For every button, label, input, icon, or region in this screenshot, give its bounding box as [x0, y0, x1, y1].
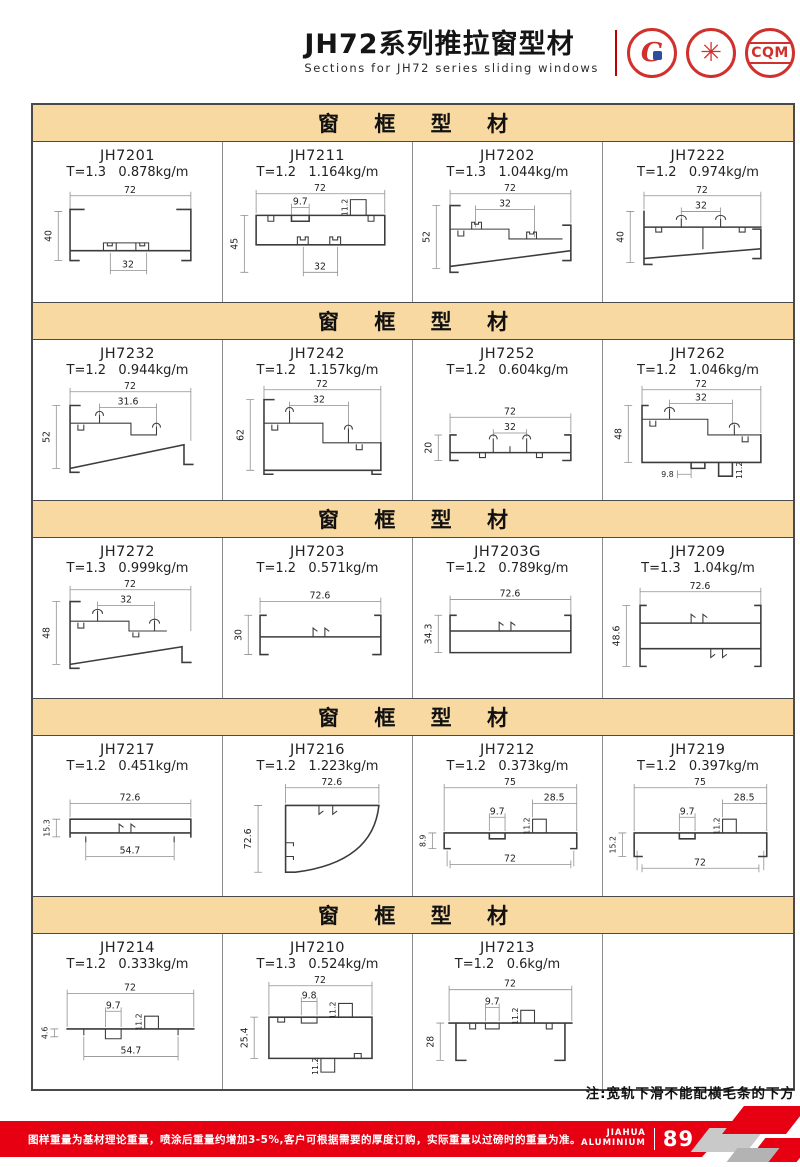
profile-model: JH7211	[223, 148, 412, 164]
profile-spec: T=1.2 0.571kg/m	[223, 561, 412, 576]
profile-drawing: 72 9.7 11.2 32 45	[224, 180, 412, 290]
profile-spec: T=1.2 1.157kg/m	[223, 363, 412, 378]
profile-cell-jh7272: JH7272 T=1.3 0.999kg/m 72 32 48	[33, 538, 223, 698]
dim-label: 54.7	[120, 1045, 141, 1056]
dim-label: 32	[314, 261, 326, 272]
profile-spec: T=1.2 0.373kg/m	[413, 759, 602, 774]
dim-label: 72	[504, 406, 516, 417]
footer-disclaimer: 图样重量为基材理论重量，喷涂后重量约增加3-5%,客户可根据需要的厚度订购，实际…	[28, 1132, 581, 1147]
profile-drawing: 72 32 52	[414, 180, 602, 290]
profile-model: JH7242	[223, 346, 412, 362]
profile-model: JH7213	[413, 940, 602, 956]
dim-label: 72.6	[499, 589, 520, 600]
dim-label: 25.4	[239, 1027, 250, 1048]
profile-cell-jh7201: JH7201 T=1.3 0.878kg/m 72 32 40	[33, 142, 223, 302]
dim-label: 72	[124, 185, 136, 196]
dim-label: 30	[233, 629, 244, 641]
profile-outline	[450, 615, 571, 652]
profile-outline	[268, 1017, 371, 1058]
cqm-certification-seal-icon: CQM	[745, 28, 795, 78]
profile-model: JH7214	[33, 940, 222, 956]
profile-cell-jh7262: JH7262 T=1.2 1.046kg/m 72 32 48 9.8 11.2	[603, 340, 793, 500]
profile-cell-jh7203g: JH7203G T=1.2 0.789kg/m 72.6 34.3	[413, 538, 603, 698]
profile-model: JH7203	[223, 544, 412, 560]
profile-cell-jh7202: JH7202 T=1.3 1.044kg/m 72 32 52	[413, 142, 603, 302]
profile-cell-jh7214: JH7214 T=1.2 0.333kg/m 72 9.7 11.2 54.7 …	[33, 934, 223, 1089]
gtb-certification-seal-icon: G	[627, 28, 677, 78]
profile-outline	[285, 805, 378, 872]
profile-model: JH7210	[223, 940, 412, 956]
dim-label: 72	[124, 983, 136, 994]
dim-label: 9.7	[105, 1000, 120, 1011]
profile-catalog: 窗 框 型 材 JH7201 T=1.3 0.878kg/m 72 32 40 …	[31, 103, 795, 1091]
dim-label: 72	[314, 183, 326, 194]
footnote: 注:宽轨下滑不能配横毛条的下方	[586, 1082, 795, 1102]
profile-spec: T=1.3 1.04kg/m	[603, 561, 793, 576]
dim-label: 32	[504, 422, 516, 433]
profile-detail	[313, 628, 329, 637]
profile-drawing: 75 28.5 9.7 11.2 72 8.9	[414, 774, 602, 884]
blue-mark	[653, 51, 662, 60]
profile-detail	[499, 622, 515, 631]
dim-label: 62	[235, 429, 246, 441]
cqm-label: CQM	[749, 42, 791, 64]
dim-label: 45	[229, 238, 240, 250]
profile-detail	[267, 200, 373, 245]
profile-drawing: 72.6 15.3 54.7	[34, 774, 222, 884]
profile-drawing: 72 32 40	[604, 180, 792, 290]
profile-detail	[450, 222, 562, 239]
profile-cell-jh7217: JH7217 T=1.2 0.451kg/m 72.6 15.3 54.7	[33, 736, 223, 896]
profile-detail	[103, 243, 148, 251]
profile-drawing: 72 32 40	[34, 180, 222, 290]
profile-cell-jh7212: JH7212 T=1.2 0.373kg/m 75 28.5 9.7 11.2 …	[413, 736, 603, 896]
certification-seals: G ✳ CQM	[627, 28, 795, 78]
dim-label: 28.5	[543, 793, 564, 804]
profile-drawing: 72 9.7 11.2 28	[414, 972, 602, 1080]
page-subtitle: Sections for JH72 series sliding windows	[304, 61, 599, 75]
dimension-lines	[240, 190, 384, 276]
dim-label: 20	[423, 442, 434, 454]
profile-spec: T=1.3 0.999kg/m	[33, 561, 222, 576]
profile-model: JH7201	[33, 148, 222, 164]
footer-decor-parallelogram-icon	[722, 1106, 800, 1134]
dim-label: 15.2	[609, 836, 618, 853]
profile-spec: T=1.2 0.974kg/m	[603, 165, 793, 180]
profile-model: JH7202	[413, 148, 602, 164]
profile-detail	[70, 411, 160, 435]
dim-label: 32	[695, 200, 707, 211]
star-certification-seal-icon: ✳	[686, 28, 736, 78]
star-glyph: ✳	[700, 40, 722, 66]
profile-spec: T=1.3 1.044kg/m	[413, 165, 602, 180]
brand-bottom: ALUMINIUM	[581, 1139, 646, 1149]
brand-name: JIAHUA ALUMINIUM	[581, 1129, 646, 1149]
footer-bar: 图样重量为基材理论重量，喷涂后重量约增加3-5%,客户可根据需要的厚度订购，实际…	[0, 1121, 735, 1157]
profile-model: JH7209	[603, 544, 793, 560]
dim-label: 52	[421, 231, 432, 243]
profile-drawing: 72 32 48 9.8 11.2	[604, 378, 792, 488]
dim-label: 72.6	[243, 828, 254, 849]
dim-label: 28.5	[734, 793, 755, 804]
profile-model: JH7252	[413, 346, 602, 362]
title-block: JH72系列推拉窗型材 Sections for JH72 series sli…	[304, 31, 599, 75]
section-row-5: JH7214 T=1.2 0.333kg/m 72 9.7 11.2 54.7 …	[33, 934, 793, 1089]
profile-drawing: 72.6 48.6	[604, 576, 792, 686]
profile-drawing: 72 9.7 11.2 54.7 4.6	[34, 972, 222, 1080]
section-header-3: 窗 框 型 材	[33, 500, 793, 538]
dim-label: 40	[615, 231, 626, 243]
profile-drawing: 72.6 34.3	[414, 576, 602, 686]
section-row-3: JH7272 T=1.3 0.999kg/m 72 32 48 JH7203 T…	[33, 538, 793, 698]
dim-label: 72	[695, 379, 707, 390]
dimension-lines	[622, 588, 760, 667]
section-row-1: JH7201 T=1.3 0.878kg/m 72 32 40 JH7211 T…	[33, 142, 793, 302]
profile-detail	[83, 1016, 177, 1039]
profile-spec: T=1.3 0.524kg/m	[223, 957, 412, 972]
section-header-5: 窗 框 型 材	[33, 896, 793, 934]
profile-cell-empty	[603, 934, 793, 1089]
profile-outline	[70, 209, 191, 260]
section-row-2: JH7232 T=1.2 0.944kg/m 72 31.6 52 JH7242…	[33, 340, 793, 500]
profile-detail	[263, 407, 380, 449]
profile-spec: T=1.2 0.944kg/m	[33, 363, 222, 378]
dim-label: 11.2	[311, 1058, 320, 1075]
profile-drawing: 72 9.8 11.2 11.2 25.4	[224, 972, 412, 1080]
profile-outline	[256, 215, 385, 244]
profile-spec: T=1.2 0.333kg/m	[33, 957, 222, 972]
dim-label: 9.8	[301, 991, 316, 1002]
section-row-4: JH7217 T=1.2 0.451kg/m 72.6 15.3 54.7 JH…	[33, 736, 793, 896]
dim-label: 48	[41, 627, 52, 639]
profile-outline	[260, 615, 381, 654]
header-divider	[615, 30, 617, 76]
page-number: 89	[663, 1127, 694, 1151]
profile-spec: T=1.3 0.878kg/m	[33, 165, 222, 180]
dim-label: 32	[695, 393, 707, 404]
profile-drawing: 72 32 48	[34, 576, 222, 686]
profile-model: JH7262	[603, 346, 793, 362]
footer-brand-block: JIAHUA ALUMINIUM 89	[581, 1127, 694, 1151]
section-header-4: 窗 框 型 材	[33, 698, 793, 736]
profile-model: JH7203G	[413, 544, 602, 560]
profile-cell-jh7213: JH7213 T=1.2 0.6kg/m 72 9.7 11.2 28	[413, 934, 603, 1089]
dim-label: 72.6	[690, 581, 711, 592]
dim-label: 15.3	[42, 819, 51, 836]
profile-outline	[70, 406, 193, 473]
profile-drawing: 72.6 72.6	[224, 774, 412, 884]
dim-label: 72	[504, 979, 516, 990]
dim-label: 4.6	[40, 1027, 49, 1039]
profile-spec: T=1.2 0.604kg/m	[413, 363, 602, 378]
profile-spec: T=1.2 1.046kg/m	[603, 363, 793, 378]
dim-label: 48	[613, 428, 624, 440]
profile-outline	[640, 605, 761, 666]
dim-label: 72	[315, 379, 327, 390]
profile-cell-jh7222: JH7222 T=1.2 0.974kg/m 72 32 40	[603, 142, 793, 302]
dim-label: 31.6	[117, 397, 138, 408]
dim-label: 72.6	[309, 591, 330, 602]
profile-spec: T=1.2 0.6kg/m	[413, 957, 602, 972]
dim-label: 72	[124, 579, 136, 590]
profile-model: JH7216	[223, 742, 412, 758]
dim-label: 54.7	[119, 846, 140, 857]
dim-label: 9.8	[661, 470, 673, 479]
profile-detail	[656, 215, 745, 248]
profile-detail	[532, 819, 546, 833]
profile-cell-jh7219: JH7219 T=1.2 0.397kg/m 75 28.5 9.7 11.2 …	[603, 736, 793, 896]
profile-detail	[479, 435, 542, 458]
page-title: JH72系列推拉窗型材	[304, 31, 599, 59]
profile-detail	[642, 407, 761, 441]
dimension-lines	[254, 784, 379, 872]
dim-label: 72.6	[321, 777, 342, 788]
profile-drawing: 72.6 30	[224, 576, 412, 686]
profile-model: JH7222	[603, 148, 793, 164]
dim-label: 48.6	[611, 625, 622, 646]
profile-spec: T=1.2 1.164kg/m	[223, 165, 412, 180]
dim-label: 72	[124, 381, 136, 392]
profile-drawing: 75 28.5 9.7 11.2 72 15.2	[604, 774, 792, 884]
dim-label: 72	[696, 185, 708, 196]
profile-spec: T=1.2 1.223kg/m	[223, 759, 412, 774]
page-header: JH72系列推拉窗型材 Sections for JH72 series sli…	[0, 22, 795, 84]
dim-label: 75	[694, 777, 706, 788]
profile-detail	[691, 614, 726, 657]
dim-label: 9.7	[484, 996, 499, 1007]
profile-spec: T=1.2 0.397kg/m	[603, 759, 793, 774]
profile-model: JH7217	[33, 742, 222, 758]
profile-detail	[285, 805, 336, 859]
dim-label: 72.6	[119, 793, 140, 804]
profile-detail	[70, 609, 166, 637]
dim-label: 8.9	[418, 835, 427, 847]
dim-label: 40	[43, 230, 54, 242]
dim-label: 72	[694, 857, 706, 868]
dim-label: 28	[425, 1036, 436, 1048]
profile-spec: T=1.2 0.789kg/m	[413, 561, 602, 576]
profile-detail	[723, 819, 737, 833]
profile-drawing: 72 31.6 52	[34, 378, 222, 488]
section-header-2: 窗 框 型 材	[33, 302, 793, 340]
profile-outline	[449, 1023, 572, 1060]
footer-divider	[654, 1128, 655, 1150]
dim-label: 11.2	[735, 462, 744, 479]
profile-cell-jh7252: JH7252 T=1.2 0.604kg/m 72 32 20	[413, 340, 603, 500]
profile-cell-jh7209: JH7209 T=1.3 1.04kg/m 72.6 48.6	[603, 538, 793, 698]
profile-model: JH7272	[33, 544, 222, 560]
dim-label: 32	[313, 395, 325, 406]
profile-spec: T=1.2 0.451kg/m	[33, 759, 222, 774]
dim-label: 9.7	[489, 806, 504, 817]
profile-drawing: 72 32 20	[414, 378, 602, 488]
dim-label: 72	[504, 853, 516, 864]
dim-label: 72	[504, 183, 516, 194]
profile-model: JH7232	[33, 346, 222, 362]
dim-label: 75	[504, 777, 516, 788]
dim-label: 9.7	[292, 197, 307, 208]
dimension-lines	[244, 598, 381, 655]
profile-outline	[70, 602, 191, 669]
dim-label: 72	[314, 975, 326, 986]
profile-drawing: 72 32 62	[224, 378, 412, 488]
profile-cell-jh7210: JH7210 T=1.3 0.524kg/m 72 9.8 11.2 11.2 …	[223, 934, 413, 1089]
profile-cell-jh7242: JH7242 T=1.2 1.157kg/m 72 32 62	[223, 340, 413, 500]
profile-outline	[634, 833, 767, 857]
profile-cell-jh7203: JH7203 T=1.2 0.571kg/m 72.6 30	[223, 538, 413, 698]
section-header-1: 窗 框 型 材	[33, 105, 793, 142]
profile-cell-jh7211: JH7211 T=1.2 1.164kg/m 72 9.7 11.2 32 45	[223, 142, 413, 302]
dim-label: 9.7	[680, 806, 695, 817]
dim-label: 32	[122, 259, 134, 270]
dim-label: 52	[41, 431, 52, 443]
profile-outline	[444, 833, 577, 849]
catalog-page: JH72系列推拉窗型材 Sections for JH72 series sli…	[0, 0, 800, 1167]
profile-model: JH7219	[603, 742, 793, 758]
profile-cell-jh7216: JH7216 T=1.2 1.223kg/m 72.6 72.6	[223, 736, 413, 896]
dim-label: 32	[120, 595, 132, 606]
profile-model: JH7212	[413, 742, 602, 758]
dim-label: 11.2	[340, 199, 349, 216]
dim-label: 32	[499, 199, 511, 210]
dim-label: 34.3	[423, 624, 434, 645]
profile-cell-jh7232: JH7232 T=1.2 0.944kg/m 72 31.6 52	[33, 340, 223, 500]
